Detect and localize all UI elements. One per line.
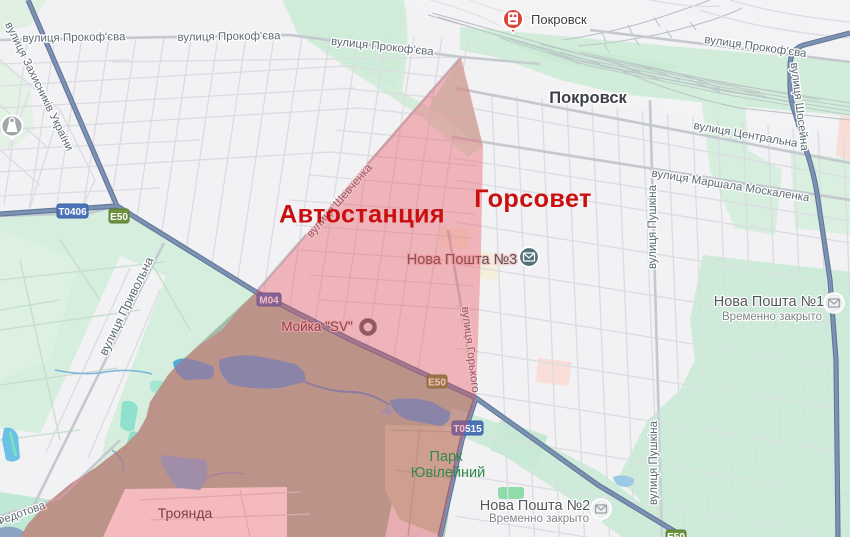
svg-text:Временно закрыто: Временно закрыто — [489, 513, 589, 525]
svg-text:E50: E50 — [667, 532, 685, 537]
svg-text:Покровск: Покровск — [531, 12, 587, 27]
svg-text:Покровск: Покровск — [549, 89, 627, 107]
svg-text:Временно закрыто: Временно закрыто — [722, 311, 822, 323]
svg-text:E50: E50 — [110, 212, 128, 223]
svg-text:Парк: Парк — [430, 449, 464, 465]
svg-text:Горсовет: Горсовет — [474, 185, 592, 213]
svg-text:T0406: T0406 — [58, 207, 87, 218]
svg-text:вулиця Пушкіна: вулиця Пушкіна — [648, 420, 660, 505]
svg-text:вулиця Прокоф'єва: вулиця Прокоф'єва — [177, 30, 281, 44]
svg-text:вулиця Прокоф'єва: вулиця Прокоф'єва — [22, 31, 126, 45]
svg-text:Нова Пошта №1: Нова Пошта №1 — [714, 294, 824, 310]
svg-text:Автостанция: Автостанция — [279, 201, 445, 229]
svg-text:Ювілейний: Ювілейний — [411, 465, 485, 481]
svg-text:вулиця Пушкіна: вулиця Пушкіна — [647, 184, 659, 269]
svg-text:Нова Пошта №2: Нова Пошта №2 — [480, 498, 590, 514]
